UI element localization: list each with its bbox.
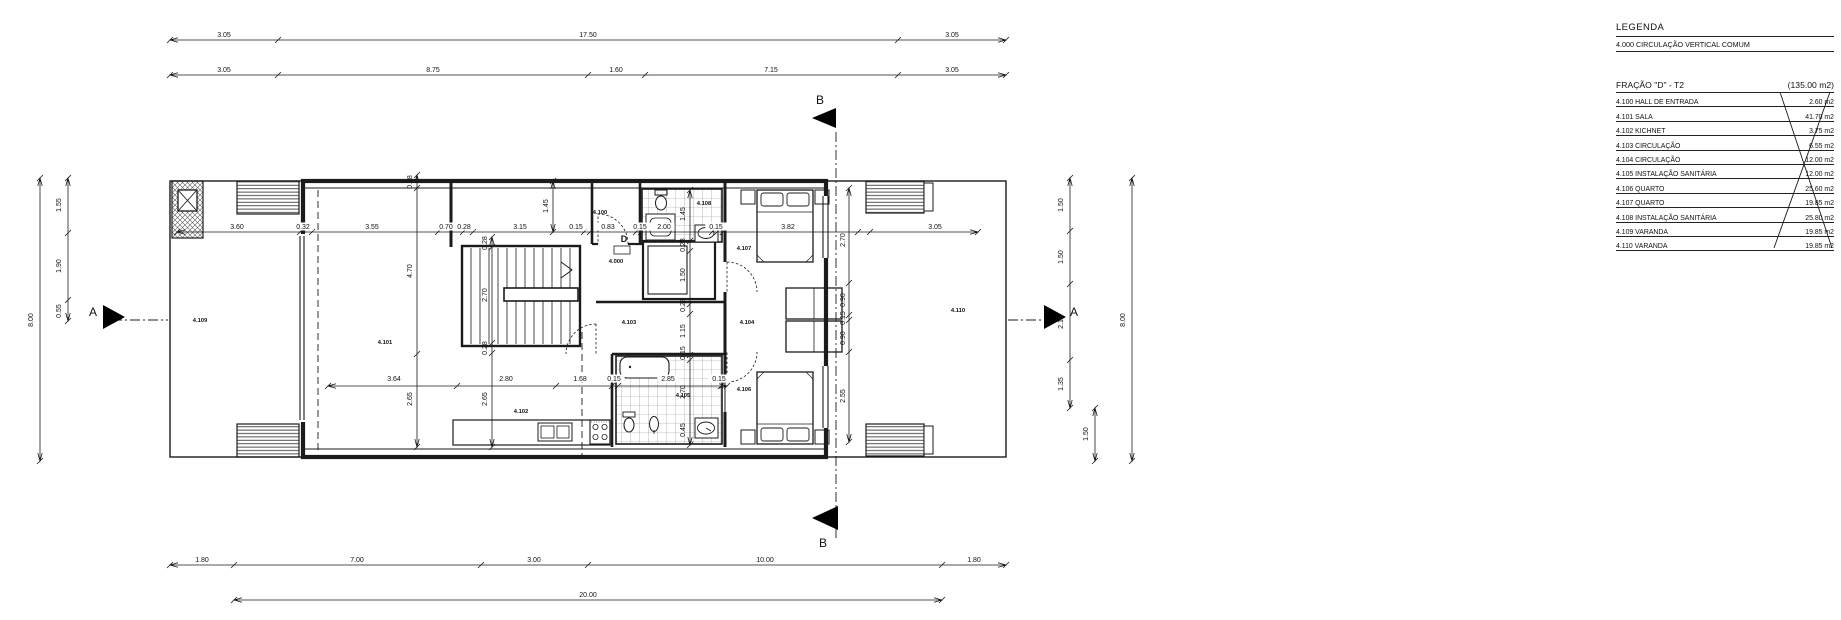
legend-common-item: 4.000 CIRCULAÇÃO VERTICAL COMUM xyxy=(1616,37,1834,52)
section-marker-a-left xyxy=(103,305,125,329)
detail-letter: D xyxy=(621,234,628,244)
dim-label: 3.05 xyxy=(928,224,942,231)
dim-label: 3.05 xyxy=(217,67,231,74)
legend-row: 4.107 QUARTO19.85 m2 xyxy=(1616,194,1834,208)
dim-label: 3.64 xyxy=(387,376,401,383)
legend-row-area: 19.85 m2 xyxy=(1805,200,1834,207)
room-label: 4.104 xyxy=(740,320,755,326)
outer-walls xyxy=(170,181,1006,457)
dim-label: 0.90 xyxy=(840,331,847,345)
dim-label: 10.00 xyxy=(756,557,774,564)
dim-label: 3.05 xyxy=(945,32,959,39)
dim-line xyxy=(414,172,420,450)
dim-label: 1.45 xyxy=(543,199,550,213)
louver-panel xyxy=(866,424,924,456)
dim-label: 1.50 xyxy=(1083,427,1090,441)
door-4106 xyxy=(727,352,757,382)
dim-line xyxy=(37,175,43,464)
dim-label: 1.90 xyxy=(56,259,63,273)
dim-label: 1.35 xyxy=(1058,377,1065,391)
legend-row-name: 4.106 QUARTO xyxy=(1616,186,1664,193)
dim-label: 1.50 xyxy=(1058,250,1065,264)
dim-label: 17.50 xyxy=(579,32,597,39)
dim-line xyxy=(167,562,1009,568)
dim-label: 0.15 xyxy=(709,224,723,231)
legend-row-name: 4.107 QUARTO xyxy=(1616,200,1664,207)
dim-label: 0.28 xyxy=(482,341,489,355)
legend-row: 4.110 VARANDA19.85 m2 xyxy=(1616,237,1834,251)
pillow xyxy=(761,428,783,441)
room-label: 4.106 xyxy=(737,387,752,393)
main-block-walls xyxy=(303,181,826,457)
dim-label: 1.50 xyxy=(680,268,687,282)
dim-label: 0.28 xyxy=(482,236,489,250)
dim-label: 1.55 xyxy=(56,198,63,212)
kitchenette xyxy=(453,420,610,445)
right-balcony-outline xyxy=(826,181,1006,457)
legend-row-area: 12.00 m2 xyxy=(1805,157,1834,164)
section-letter: A xyxy=(89,305,97,319)
drawing-sheet: 3.0517.503.053.058.751.607.153.051.807.0… xyxy=(0,0,1841,620)
dim-label: 3.15 xyxy=(513,224,527,231)
dim-label: 0.15 xyxy=(607,376,621,383)
legend-row-name: 4.102 KICHNET xyxy=(1616,128,1665,135)
section-marker-b-bottom xyxy=(812,506,838,530)
plan-annotations: 3.0517.503.053.058.751.607.153.051.807.0… xyxy=(28,31,1127,600)
dim-line xyxy=(167,72,1009,78)
section-letter: B xyxy=(816,93,824,107)
dim-line xyxy=(1129,175,1135,464)
dim-label: 1.50 xyxy=(1058,198,1065,212)
dim-label: 3.55 xyxy=(365,224,379,231)
stair-core xyxy=(462,246,580,346)
fraction-table: FRAÇÃO "D" - T2 (135.00 m2) 4.100 HALL D… xyxy=(1616,80,1834,251)
dim-label: 0.45 xyxy=(680,423,687,437)
room-label: 4.100 xyxy=(593,210,608,216)
room-label: 4.107 xyxy=(737,246,752,252)
dim-label: 2.00 xyxy=(657,224,671,231)
legend-row-area: 2.60 m2 xyxy=(1809,99,1834,106)
dim-label: 8.00 xyxy=(1120,313,1127,327)
louver-panel xyxy=(866,181,924,213)
bed-4106 xyxy=(741,372,829,444)
floor-plan: 3.0517.503.053.058.751.607.153.051.807.0… xyxy=(0,0,1841,620)
room-label: 4.103 xyxy=(622,320,637,326)
legend-row: 4.108 INSTALAÇÃO SANITÁRIA25.80 m2 xyxy=(1616,208,1834,222)
legend-row-name: 4.110 VARANDA xyxy=(1616,243,1667,250)
legend-row-area: 19.85 m2 xyxy=(1805,229,1834,236)
legend-row-area: 25.80 m2 xyxy=(1805,215,1834,222)
dim-label: 7.00 xyxy=(350,557,364,564)
dim-label: 2.65 xyxy=(482,392,489,406)
pillow xyxy=(761,193,783,206)
dim-label: 3.82 xyxy=(781,224,795,231)
dim-label: 3.00 xyxy=(527,557,541,564)
room-label: 4.109 xyxy=(193,318,208,324)
legend-row: 4.109 VARANDA19.85 m2 xyxy=(1616,223,1834,237)
legend-panel: LEGENDA 4.000 CIRCULAÇÃO VERTICAL COMUM … xyxy=(1616,22,1834,251)
dim-label: 0.15 xyxy=(633,224,647,231)
dim-line xyxy=(489,234,495,450)
legend-row: 4.101 SALA41.70 m2 xyxy=(1616,107,1834,121)
legend-row: 4.103 CIRCULAÇÃO6.55 m2 xyxy=(1616,136,1834,150)
dim-label: 0.90 xyxy=(840,293,847,307)
dim-label: 7.15 xyxy=(764,67,778,74)
room-label: 4.000 xyxy=(609,259,624,265)
room-label: 4.102 xyxy=(514,409,529,415)
dim-label: 2.15 xyxy=(1058,315,1065,329)
dim-label: 8.00 xyxy=(28,313,35,327)
dim-label: 2.55 xyxy=(840,389,847,403)
legend-row: 4.105 INSTALAÇÃO SANITÁRIA12.00 m2 xyxy=(1616,165,1834,179)
fraction-title: FRAÇÃO "D" - T2 xyxy=(1616,80,1684,90)
dim-label: 0.28 xyxy=(407,175,414,189)
dim-label: 0.15 xyxy=(840,311,847,325)
legend-row-name: 4.104 CIRCULAÇÃO xyxy=(1616,157,1680,164)
legend-row-area: 25.60 m2 xyxy=(1805,186,1834,193)
dim-label: 20.00 xyxy=(579,592,597,599)
door-4107 xyxy=(727,262,757,292)
fraction-total-area: (135.00 m2) xyxy=(1788,80,1834,90)
legend-row-area: 19.85 m2 xyxy=(1805,243,1834,250)
pillow xyxy=(787,428,809,441)
wardrobes xyxy=(786,288,842,352)
dim-line xyxy=(1067,175,1073,411)
bidet xyxy=(650,417,659,432)
toilet xyxy=(624,418,634,432)
louver-panel xyxy=(237,181,299,214)
legend-row: 4.102 KICHNET3.75 m2 xyxy=(1616,122,1834,136)
stair-handrail xyxy=(504,288,578,301)
dim-label: 2.65 xyxy=(407,392,414,406)
legend-row-name: 4.100 HALL DE ENTRADA xyxy=(1616,99,1698,106)
right-balcony xyxy=(866,181,933,456)
dim-label: 4.70 xyxy=(407,264,414,278)
section-letter: B xyxy=(819,536,827,550)
dim-label: 0.28 xyxy=(680,298,687,312)
toilet xyxy=(656,196,667,210)
dim-label: 1.80 xyxy=(967,557,981,564)
dim-label: 2.80 xyxy=(499,376,513,383)
bathroom-bottom xyxy=(616,356,722,444)
dim-line xyxy=(550,178,556,235)
legend-row-name: 4.108 INSTALAÇÃO SANITÁRIA xyxy=(1616,215,1717,222)
nightstand xyxy=(741,190,755,204)
dim-line xyxy=(1092,405,1098,464)
detail-marker-d-box xyxy=(614,246,630,254)
dim-label: 0.83 xyxy=(601,224,615,231)
dim-label: 3.05 xyxy=(217,32,231,39)
room-label: 4.110 xyxy=(951,308,965,314)
legend-row-name: 4.103 CIRCULAÇÃO xyxy=(1616,143,1680,150)
dim-label: 3.60 xyxy=(230,224,244,231)
dim-label: 2.85 xyxy=(661,376,675,383)
pillow xyxy=(787,193,809,206)
dim-label: 0.70 xyxy=(439,224,453,231)
dim-label: 0.15 xyxy=(569,224,583,231)
legend-row: 4.100 HALL DE ENTRADA2.60 m2 xyxy=(1616,93,1834,107)
legend-row: 4.104 CIRCULAÇÃO12.00 m2 xyxy=(1616,151,1834,165)
room-label: 4.101 xyxy=(378,340,393,346)
dim-label: 1.80 xyxy=(195,557,209,564)
nightstand xyxy=(741,430,755,444)
stove xyxy=(590,420,610,444)
legend-row-area: 3.75 m2 xyxy=(1809,128,1834,135)
section-letter: A xyxy=(1070,305,1078,319)
dim-label: 1.45 xyxy=(680,207,687,221)
dim-line xyxy=(65,175,71,324)
dim-label: 0.15 xyxy=(680,346,687,360)
section-markers xyxy=(103,108,1066,530)
legend-row: 4.106 QUARTO25.60 m2 xyxy=(1616,179,1834,193)
room-label: 4.105 xyxy=(676,393,691,399)
fraction-header: FRAÇÃO "D" - T2 (135.00 m2) xyxy=(1616,80,1834,93)
legend-row-area: 6.55 m2 xyxy=(1809,143,1834,150)
dim-label: 1.60 xyxy=(609,67,623,74)
elevator xyxy=(643,241,715,299)
room-label: 4.108 xyxy=(697,201,712,207)
dim-label: 0.32 xyxy=(296,224,310,231)
dim-label: 1.68 xyxy=(573,376,587,383)
legend-row-name: 4.109 VARANDA xyxy=(1616,229,1668,236)
dim-label: 1.15 xyxy=(680,324,687,338)
dim-label: 3.05 xyxy=(945,67,959,74)
legend-title: LEGENDA xyxy=(1616,22,1834,37)
legend-row-name: 4.105 INSTALAÇÃO SANITÁRIA xyxy=(1616,171,1717,178)
louver-panel xyxy=(237,424,299,457)
legend-row-area: 41.70 m2 xyxy=(1805,114,1834,121)
dim-label: 0.55 xyxy=(56,304,63,318)
dim-label: 8.75 xyxy=(426,67,440,74)
fraction-rows: 4.100 HALL DE ENTRADA2.60 m24.101 SALA41… xyxy=(1616,93,1834,251)
section-marker-b-top xyxy=(812,108,836,128)
dim-label: 2.70 xyxy=(840,233,847,247)
legend-row-name: 4.101 SALA xyxy=(1616,114,1653,121)
dim-label: 0.15 xyxy=(712,376,726,383)
dim-label: 2.70 xyxy=(482,288,489,302)
legend-row-area: 12.00 m2 xyxy=(1805,171,1834,178)
dim-label: 0.28 xyxy=(680,238,687,252)
dim-label: 0.28 xyxy=(457,224,471,231)
